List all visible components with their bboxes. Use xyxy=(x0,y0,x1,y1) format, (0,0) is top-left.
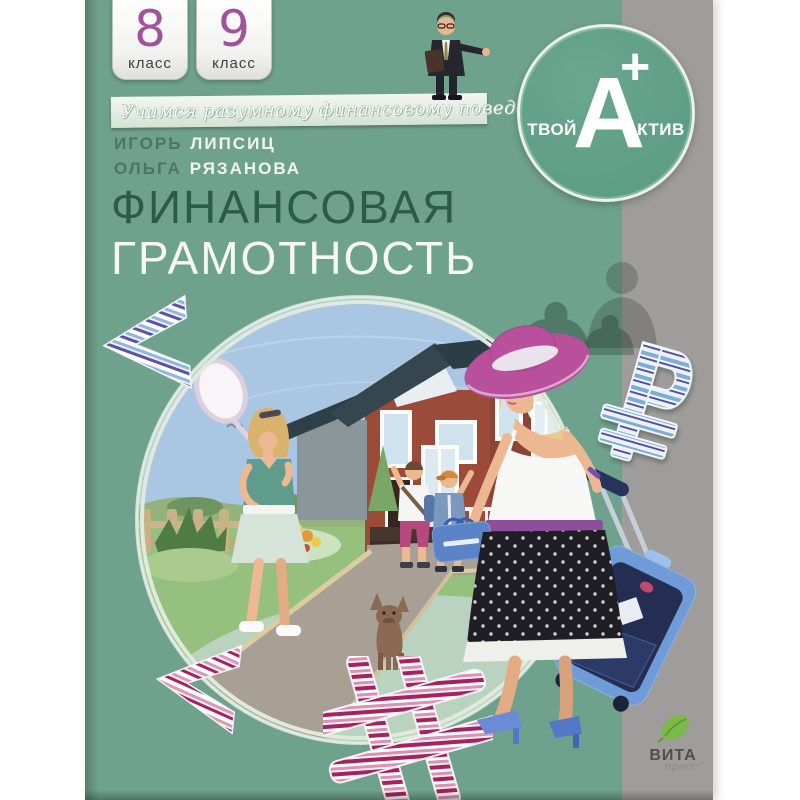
authors-block: ИГОРЬЛИПСИЦ ОЛЬГАРЯЗАНОВА xyxy=(114,131,301,181)
book-title: ФИНАНСОВАЯ ГРАМОТНОСТЬ xyxy=(111,182,477,284)
title-line2: ГРАМОТНОСТЬ xyxy=(111,233,477,284)
businessman-icon xyxy=(396,10,496,102)
woman-traveler-illustration xyxy=(415,318,713,750)
chevron-symbol-lower-icon xyxy=(142,632,246,736)
book-cover: 8 класс 9 класс Учимся разумному финансо… xyxy=(85,0,713,800)
author-line: ОЛЬГАРЯЗАНОВА xyxy=(114,156,301,181)
brand-suffix: КТИВ xyxy=(637,120,685,140)
brand-logo: ТВОЙ А + КТИВ xyxy=(517,24,695,202)
book-cover-photo: 8 класс 9 класс Учимся разумному финансо… xyxy=(0,0,800,800)
author-last-name: РЯЗАНОВА xyxy=(190,159,301,178)
leaf-icon xyxy=(655,714,691,744)
slogan-text: Учимся разумному финансовому поведению xyxy=(121,97,568,123)
title-line1: ФИНАНСОВАЯ xyxy=(111,182,477,233)
author-first-name: ОЛЬГА xyxy=(114,159,182,178)
chevron-symbol-upper-icon xyxy=(89,294,195,397)
grade-label: класс xyxy=(113,55,187,72)
publisher-logo: ВИТА пресс xyxy=(633,714,713,792)
grade-number: 8 xyxy=(113,1,187,57)
brand-prefix: ТВОЙ xyxy=(527,120,577,140)
author-first-name: ИГОРЬ xyxy=(114,134,182,153)
author-line: ИГОРЬЛИПСИЦ xyxy=(114,131,301,156)
author-last-name: ЛИПСИЦ xyxy=(190,134,275,153)
grade-badge-9: 9 класс xyxy=(196,0,272,80)
grade-number: 9 xyxy=(197,1,271,57)
grade-badge-8: 8 класс xyxy=(112,0,188,80)
grade-label: класс xyxy=(197,55,271,72)
plus-icon: + xyxy=(620,41,650,93)
hat-icon xyxy=(455,318,596,411)
